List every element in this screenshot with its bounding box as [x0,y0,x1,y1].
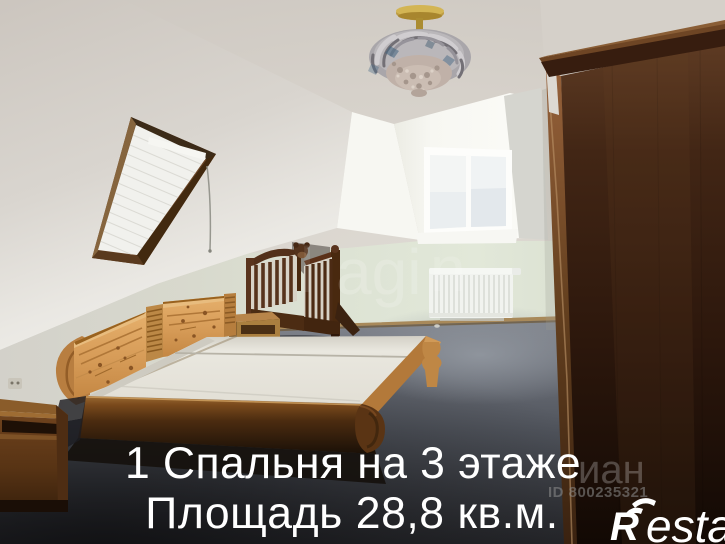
svg-text:l: l [300,234,314,306]
svg-text:agi: agi [336,236,421,308]
svg-text:1 Спальня на 3 этаже: 1 Спальня на 3 этаже [125,439,581,488]
svg-text:Площадь 28,8 кв.м.: Площадь 28,8 кв.м. [145,489,558,538]
svg-text:estate: estate [646,500,725,544]
svg-text:n: n [430,233,466,305]
